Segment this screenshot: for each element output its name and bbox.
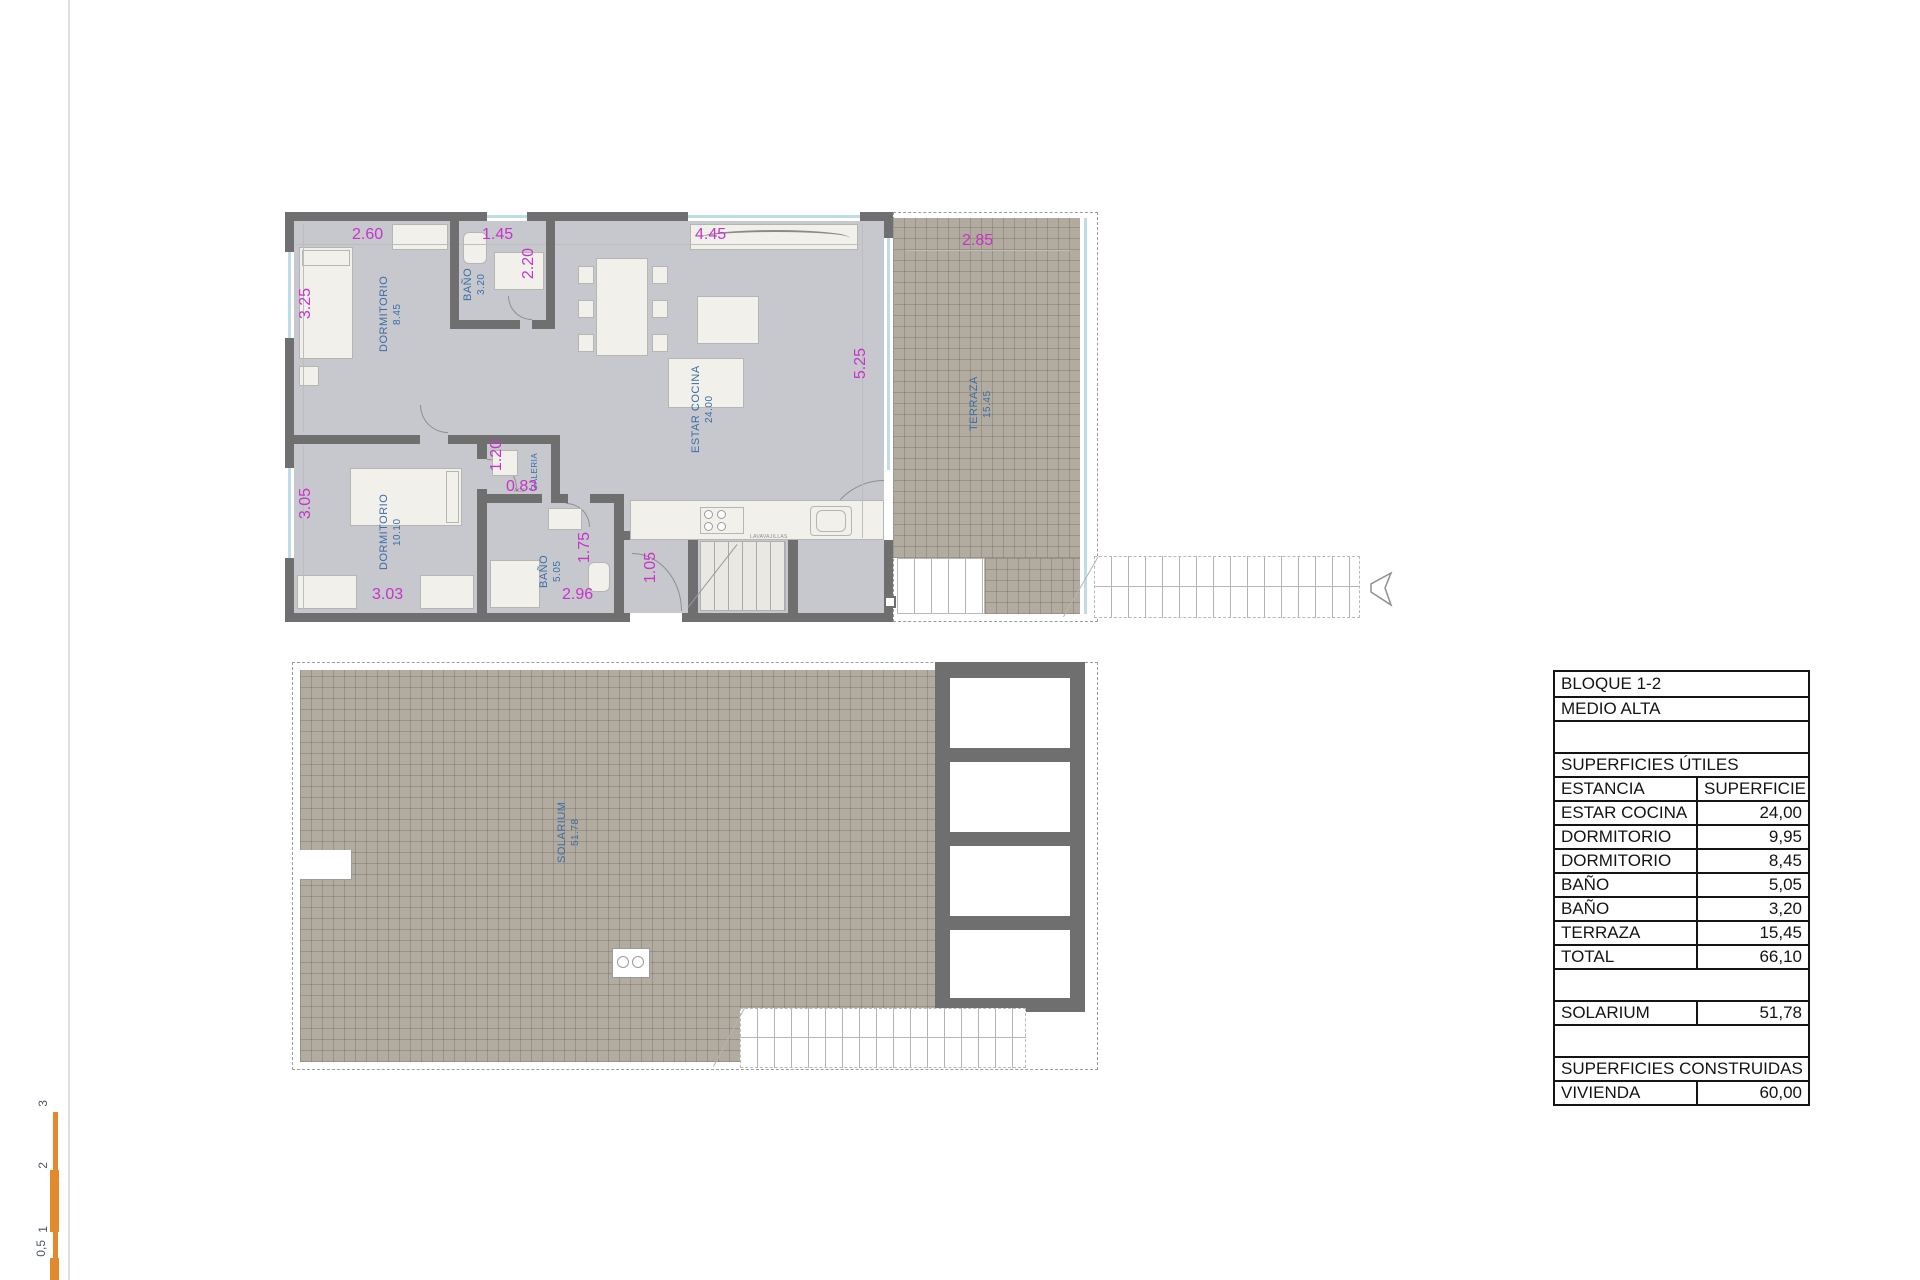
core-void — [950, 678, 1070, 748]
table-row: BAÑO 5,05 — [1555, 872, 1808, 896]
coffee-table — [697, 296, 759, 344]
wall — [884, 212, 893, 238]
dim-dorm1-top: 2.60 — [352, 226, 383, 244]
wall — [285, 435, 420, 444]
wall — [477, 444, 487, 459]
scale-label: 1 — [36, 1226, 50, 1233]
dimension-line — [555, 244, 860, 245]
sink-bowl — [816, 510, 846, 532]
table-row: TERRAZA 15,45 — [1555, 920, 1808, 944]
areas-table: BLOQUE 1-2 MEDIO ALTA SUPERFICIES ÚTILES… — [1553, 670, 1810, 1106]
table-row: SOLARIUM 51,78 — [1555, 1000, 1808, 1024]
chair — [578, 300, 594, 318]
wall — [477, 489, 487, 622]
burner — [717, 522, 726, 531]
page-border-left — [68, 0, 70, 1280]
burner — [704, 522, 713, 531]
dim-hall: 1.05 — [642, 552, 660, 583]
table-row: MEDIO ALTA — [1555, 696, 1808, 720]
dimension-line — [459, 244, 546, 245]
window-glass — [887, 238, 890, 470]
dim-galeria-h: 0.83 — [506, 478, 537, 496]
table-row: VIVIENDA 60,00 — [1555, 1080, 1808, 1104]
plan-sheet: LAVAVAJILLAS DORMITORIO — [0, 0, 1920, 1280]
table-row: BLOQUE 1-2 — [1555, 672, 1808, 696]
table-row: SUPERFICIES CONSTRUIDAS — [1555, 1056, 1808, 1080]
wall — [450, 212, 459, 320]
scale-segment — [53, 1112, 58, 1170]
chair — [578, 334, 594, 352]
dim-galeria-w: 1.20 — [488, 440, 506, 471]
vanity — [548, 508, 582, 530]
room-label-terrace: TERRAZA 15.45 — [968, 358, 994, 450]
vent-circle — [617, 956, 629, 968]
dimension-line — [303, 224, 304, 432]
table-row — [1555, 1024, 1808, 1056]
exterior-stair-run — [1094, 556, 1360, 618]
room-label-dorm2: DORMITORIO 10.10 — [378, 480, 404, 584]
pillow — [446, 471, 459, 523]
chair — [652, 300, 668, 318]
stair-handrail — [740, 1037, 1026, 1038]
table-row: SUPERFICIES ÚTILES — [1555, 752, 1808, 776]
table-row: DORMITORIO 9,95 — [1555, 824, 1808, 848]
dimension-line — [295, 244, 450, 245]
direction-arrow-icon — [1362, 568, 1396, 608]
dimension-line — [303, 446, 304, 610]
solarium-notch — [300, 850, 352, 880]
dim-bath2-right: 1.75 — [576, 532, 594, 563]
core-void — [950, 846, 1070, 916]
table-header-row: ESTANCIA SUPERFICIE — [1555, 776, 1808, 800]
window-glass — [487, 215, 527, 218]
wardrobe — [392, 224, 448, 250]
room-label-solarium: SOLARIUM 51.78 — [556, 772, 582, 892]
dim-dorm2-bottom: 3.03 — [372, 586, 403, 604]
window-glass — [288, 468, 291, 558]
pillar-marker — [884, 596, 896, 608]
window-glass — [1084, 218, 1087, 614]
room-label-bath1: BAÑO 3.20 — [462, 248, 488, 320]
table-row: BAÑO 3,20 — [1555, 896, 1808, 920]
scale-label: 0,5 — [34, 1240, 48, 1257]
dim-dorm1-left: 3.25 — [297, 288, 315, 319]
dishwasher-label: LAVAVAJILLAS — [750, 534, 788, 540]
vent-circle — [632, 956, 644, 968]
dimension-line — [862, 224, 863, 538]
terrace-stairs — [897, 558, 985, 614]
solarium-floor — [300, 670, 935, 1062]
room-label-living: ESTAR COCINA 24.00 — [690, 350, 716, 468]
wall — [682, 613, 893, 622]
dimension-line — [905, 250, 1070, 251]
wall — [450, 320, 520, 329]
wall — [560, 494, 568, 503]
burner — [717, 510, 726, 519]
wall — [285, 613, 630, 622]
pillow — [302, 250, 350, 266]
wall — [884, 540, 893, 622]
table-row: DORMITORIO 8,45 — [1555, 848, 1808, 872]
room-label-bath2: BAÑO 5.05 — [538, 536, 564, 606]
nightstand — [299, 366, 319, 386]
dining-table — [596, 258, 648, 356]
wardrobe — [297, 575, 357, 609]
dim-living-right: 5.25 — [852, 348, 870, 379]
table-row — [1555, 968, 1808, 1000]
chair — [578, 266, 594, 284]
dim-bath1-top: 1.45 — [482, 226, 513, 244]
scale-label: 3 — [36, 1100, 50, 1107]
table-row: TOTAL 66,10 — [1555, 944, 1808, 968]
window-glass — [288, 252, 291, 338]
room-label-dorm1: DORMITORIO 8.45 — [378, 266, 404, 362]
shower — [490, 560, 540, 608]
dim-dorm2-left: 3.05 — [297, 488, 315, 519]
wall — [546, 212, 555, 329]
dim-bath1-right: 2.20 — [520, 248, 538, 279]
core-void — [950, 762, 1070, 832]
chair — [652, 266, 668, 284]
core-void — [950, 930, 1070, 998]
wall — [688, 540, 698, 613]
scale-label: 2 — [36, 1162, 50, 1169]
window-glass — [688, 215, 860, 218]
table-row — [1555, 720, 1808, 752]
table-row: ESTAR COCINA 24,00 — [1555, 800, 1808, 824]
dim-living-top: 4.45 — [695, 226, 726, 244]
wardrobe — [420, 575, 474, 609]
dim-terrace-top: 2.85 — [962, 232, 993, 250]
solarium-stairs — [740, 1008, 1026, 1068]
burner — [704, 510, 713, 519]
scale-segment — [53, 1232, 58, 1258]
scale-segment — [50, 1170, 59, 1232]
wall — [788, 540, 798, 613]
dim-bath2-bottom: 2.96 — [562, 586, 593, 604]
scale-segment — [50, 1258, 59, 1280]
stair-handrail — [1094, 586, 1360, 587]
wall — [551, 444, 560, 503]
chair — [652, 334, 668, 352]
wall — [614, 494, 624, 613]
